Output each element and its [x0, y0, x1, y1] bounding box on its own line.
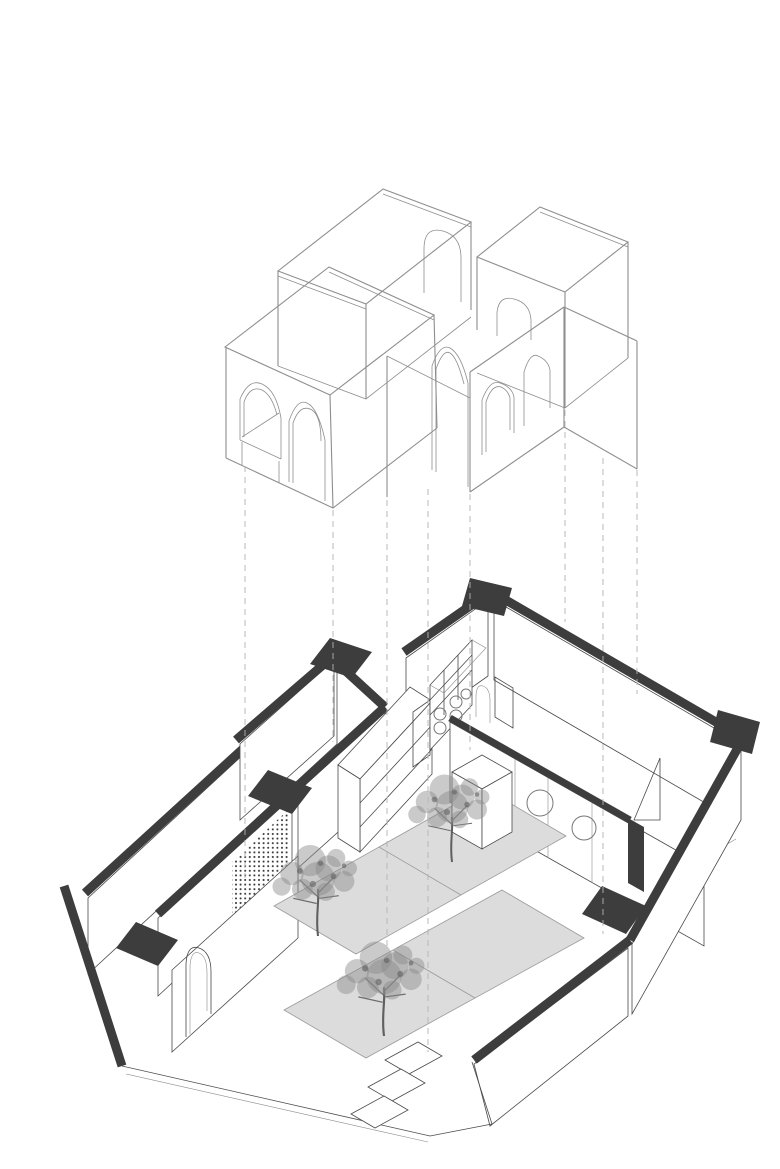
wall-section-cut — [628, 818, 644, 892]
page — [0, 0, 780, 1169]
exploded-axonometric-drawing — [0, 0, 780, 1169]
